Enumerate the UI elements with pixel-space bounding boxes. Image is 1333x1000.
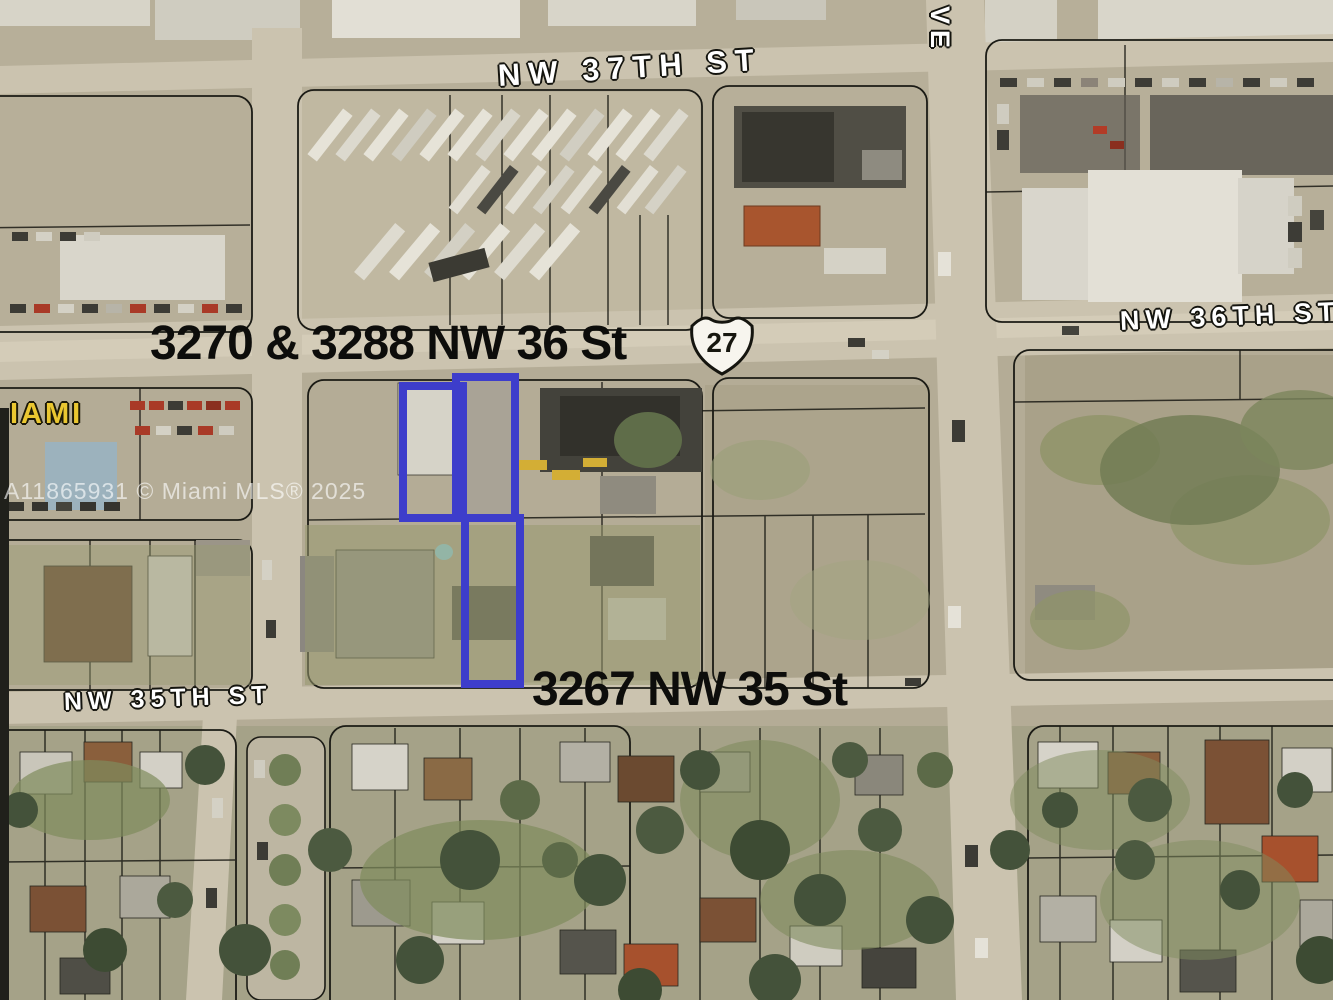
street-label-avenue-partial: VE xyxy=(926,6,953,54)
property-address-south: 3267 NW 35 St xyxy=(532,666,847,714)
route-number-label: 27 xyxy=(706,327,737,358)
city-label-partial: IAMI xyxy=(10,400,83,429)
property-address-north: 3270 & 3288 NW 36 St xyxy=(150,320,626,368)
mls-watermark: A11865931 © Miami MLS® 2025 xyxy=(4,480,366,503)
aerial-map: 27 NW 37TH ST NW 36TH ST NW 35TH ST VE 3… xyxy=(0,0,1333,1000)
us-route-27-shield-icon: 27 xyxy=(684,310,760,382)
